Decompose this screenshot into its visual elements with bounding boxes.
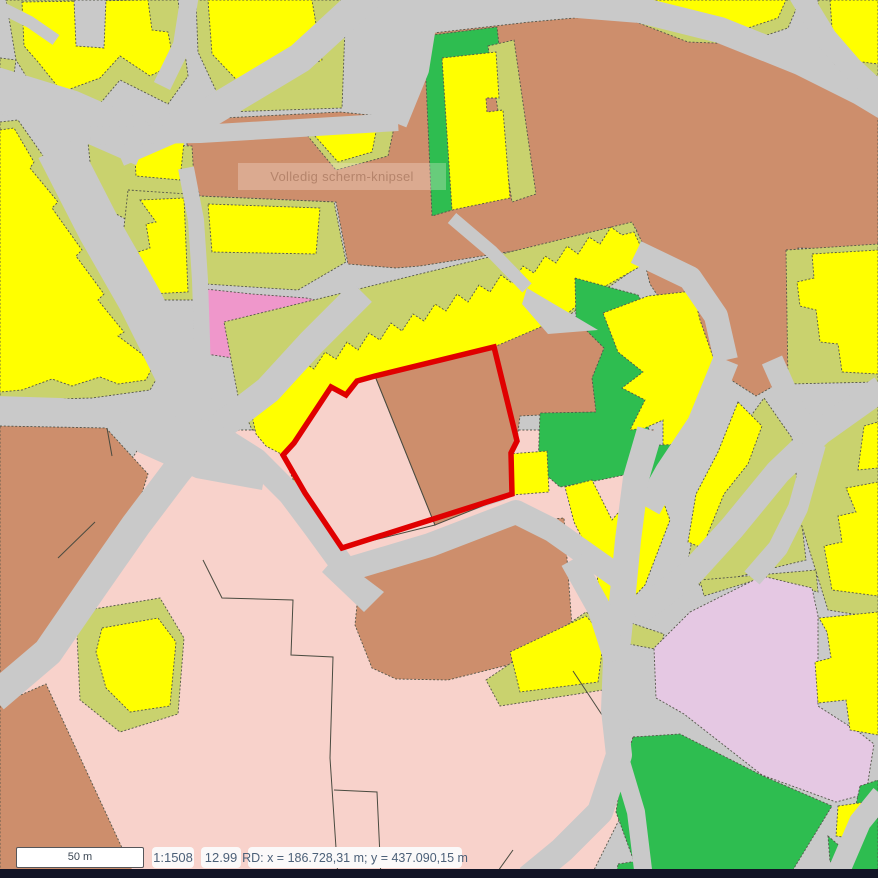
gis-map-viewer: Volledig scherm-knipsel 50 m 1:1508 12.9… [0,0,878,878]
taskbar-strip [0,869,878,878]
status-bar: 50 m 1:1508 12.99 RD: x = 186.728,31 m; … [0,847,878,869]
map-canvas[interactable] [0,0,878,878]
scale-bar: 50 m [16,847,144,868]
scale-ratio-readout: 1:1508 [152,847,194,868]
courtyard [74,0,106,48]
zoom-level-readout: 12.99 [201,847,241,868]
snip-watermark: Volledig scherm-knipsel [238,163,446,190]
coordinates-readout: RD: x = 186.728,31 m; y = 437.090,15 m [248,847,462,868]
building-footprint [509,451,549,495]
building-footprint [208,204,320,254]
